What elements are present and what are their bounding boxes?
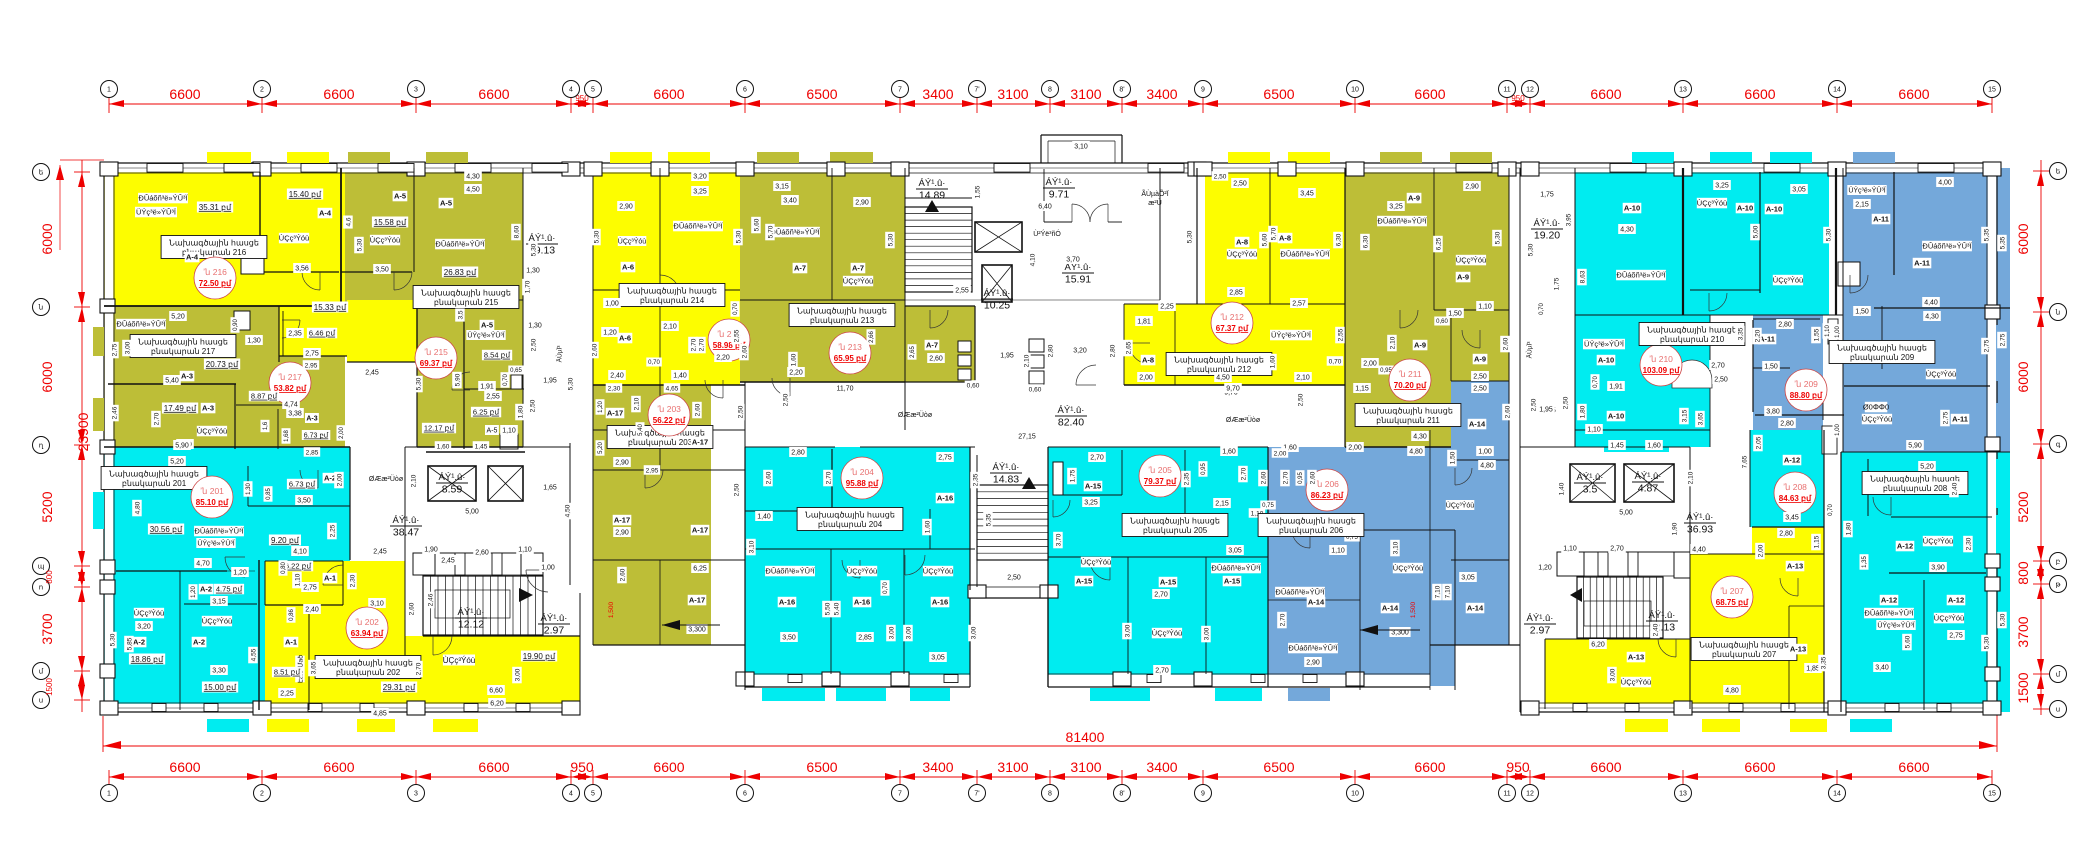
svg-text:2,70: 2,70: [153, 412, 160, 425]
svg-text:11,70: 11,70: [837, 386, 854, 393]
svg-text:բնակարան 204: բնակարան 204: [818, 520, 883, 529]
svg-text:2,95: 2,95: [305, 362, 318, 369]
svg-text:3,00: 3,00: [1609, 668, 1616, 681]
svg-text:ØÆæ²Üòø: ØÆæ²Üòø: [898, 411, 933, 419]
svg-text:5,00: 5,00: [1752, 225, 1759, 238]
svg-text:2,45: 2,45: [373, 549, 387, 556]
svg-text:1,20: 1,20: [1538, 565, 1552, 572]
svg-text:5,60: 5,60: [1261, 233, 1268, 246]
svg-text:2,70: 2,70: [1240, 467, 1247, 480]
svg-text:86.23 բմ: 86.23 բմ: [1311, 491, 1344, 500]
svg-text:2,60: 2,60: [765, 471, 772, 484]
svg-text:2,65: 2,65: [910, 346, 916, 358]
svg-text:2,60: 2,60: [1260, 471, 1267, 484]
svg-text:1,00: 1,00: [605, 301, 619, 308]
svg-text:3,25: 3,25: [1715, 183, 1729, 190]
svg-text:A-16: A-16: [779, 598, 795, 607]
svg-text:2,20: 2,20: [789, 370, 803, 377]
svg-text:6: 6: [743, 87, 747, 94]
svg-text:5,30: 5,30: [1825, 228, 1832, 241]
svg-text:ʼն 203: ʼն 203: [657, 404, 681, 414]
svg-text:4,55: 4,55: [250, 648, 257, 661]
svg-text:2,40: 2,40: [305, 607, 319, 614]
svg-text:Նախագծային հասցե: Նախագծային հասցե: [169, 239, 259, 248]
svg-text:3,5: 3,5: [457, 310, 464, 319]
svg-text:3,00: 3,00: [124, 341, 131, 354]
svg-text:14: 14: [1833, 791, 1841, 798]
svg-text:2,50: 2,50: [1562, 396, 1569, 409]
svg-text:6.22 բմ: 6.22 բմ: [285, 562, 312, 571]
svg-text:1,15: 1,15: [1355, 386, 1369, 393]
svg-text:1,20: 1,20: [191, 586, 197, 598]
svg-text:2,00: 2,00: [1274, 450, 1287, 457]
svg-text:68.75 բմ: 68.75 բմ: [1716, 598, 1749, 607]
svg-text:6500: 6500: [1263, 759, 1294, 775]
svg-text:6600: 6600: [1414, 759, 1445, 775]
svg-text:950: 950: [570, 759, 594, 775]
svg-text:1,00: 1,00: [541, 565, 555, 572]
svg-text:6600: 6600: [169, 86, 200, 102]
svg-text:ÐÛáõñ³ë»ÝÛ³Ï: ÐÛáõñ³ë»ÝÛ³Ï: [1922, 242, 1972, 251]
svg-text:2.97: 2.97: [1530, 625, 1551, 637]
svg-text:A-13: A-13: [1787, 562, 1803, 571]
svg-text:A-2: A-2: [133, 638, 145, 647]
svg-text:2,85: 2,85: [306, 449, 319, 456]
svg-text:A-5: A-5: [487, 428, 498, 435]
svg-text:6500: 6500: [806, 86, 837, 102]
svg-text:A-2: A-2: [193, 638, 205, 647]
svg-text:ÜÝç³ë»ÝÛ³Ï: ÜÝç³ë»ÝÛ³Ï: [1271, 331, 1312, 340]
svg-text:Նախագծային հասցե: Նախագծային հասցե: [1130, 517, 1220, 526]
svg-text:2,70: 2,70: [825, 471, 832, 484]
svg-text:8.51 բմ: 8.51 բմ: [274, 668, 301, 677]
svg-text:5,30: 5,30: [1527, 243, 1534, 256]
svg-text:81400: 81400: [1066, 729, 1105, 745]
svg-text:3,20: 3,20: [1073, 348, 1087, 355]
svg-text:3,40: 3,40: [783, 198, 797, 205]
svg-text:3,50: 3,50: [782, 635, 796, 642]
svg-text:8: 8: [1048, 87, 1052, 94]
svg-text:2,10: 2,10: [633, 397, 640, 410]
svg-text:2,60: 2,60: [741, 345, 748, 358]
svg-text:5,20: 5,20: [171, 314, 185, 321]
svg-text:5,30: 5,30: [356, 238, 363, 251]
svg-text:7: 7: [898, 87, 902, 94]
svg-text:1,80: 1,80: [517, 405, 524, 418]
svg-text:2,60: 2,60: [408, 602, 415, 615]
svg-text:ղ: ղ: [39, 443, 44, 450]
svg-text:14: 14: [1833, 87, 1841, 94]
svg-text:4,30: 4,30: [1413, 434, 1427, 441]
svg-text:Նախագծային հասցե: Նախագծային հասցե: [797, 307, 887, 316]
svg-text:ն: ն: [2055, 309, 2060, 317]
svg-text:1,40: 1,40: [1558, 482, 1565, 495]
svg-text:5,30: 5,30: [887, 233, 894, 246]
svg-text:3,65: 3,65: [1697, 412, 1704, 425]
svg-text:3,300: 3,300: [1391, 630, 1409, 637]
svg-text:Նախագծային հասցե: Նախագծային հասցե: [1363, 407, 1453, 416]
svg-text:12: 12: [1526, 791, 1534, 798]
svg-text:A-3: A-3: [202, 404, 214, 413]
svg-text:20.73 բմ: 20.73 բմ: [206, 360, 239, 369]
svg-text:1,65: 1,65: [543, 485, 557, 492]
svg-text:1,50: 1,50: [1448, 311, 1462, 318]
svg-text:2,50: 2,50: [530, 338, 537, 351]
svg-text:A-10: A-10: [1608, 412, 1624, 421]
svg-text:ÁÝ¹.û·: ÁÝ¹.û·: [1635, 471, 1662, 482]
svg-text:2,80: 2,80: [1779, 531, 1793, 538]
svg-text:A-13: A-13: [1790, 645, 1806, 654]
svg-text:5,50: 5,50: [824, 602, 831, 615]
svg-text:3,10: 3,10: [748, 540, 755, 553]
svg-text:Ù²Ýë³ñÓ: Ù²Ýë³ñÓ: [1033, 229, 1061, 238]
svg-text:2,75: 2,75: [938, 455, 952, 462]
svg-text:A-9: A-9: [1457, 273, 1469, 282]
svg-text:4,50: 4,50: [564, 504, 571, 517]
svg-text:1,00: 1,00: [1835, 424, 1841, 436]
svg-text:6,20: 6,20: [490, 701, 504, 708]
svg-text:ÐÛáõñ³ë»ÝÛ³Ï: ÐÛáõñ³ë»ÝÛ³Ï: [1211, 564, 1261, 573]
svg-text:2,75: 2,75: [303, 585, 317, 592]
svg-text:2,60: 2,60: [619, 568, 626, 581]
svg-text:2,25: 2,25: [329, 524, 336, 537]
svg-text:A-5: A-5: [481, 321, 493, 330]
svg-text:1,95: 1,95: [1000, 353, 1014, 360]
svg-text:1,10: 1,10: [1331, 548, 1345, 555]
svg-text:ÁÝ¹.û·: ÁÝ¹.û·: [541, 613, 568, 624]
svg-text:2,57: 2,57: [1292, 301, 1306, 308]
svg-text:4,10: 4,10: [293, 549, 307, 556]
svg-text:ÁÝ¹.û·: ÁÝ¹.û·: [984, 288, 1011, 299]
svg-text:3: 3: [414, 87, 418, 94]
svg-text:3,56: 3,56: [295, 266, 309, 273]
svg-text:19.20: 19.20: [1534, 230, 1560, 242]
svg-text:ÙÇç³Ýóù: ÙÇç³Ýóù: [847, 567, 877, 576]
svg-text:2,70: 2,70: [415, 662, 422, 675]
svg-text:17.49 բմ: 17.49 բմ: [164, 404, 197, 413]
svg-text:ÐÛáõñ³ë»ÝÛ³Ï: ÐÛáõñ³ë»ÝÛ³Ï: [770, 228, 820, 237]
svg-text:A-5: A-5: [394, 192, 406, 201]
svg-text:բնակարան 202: բնակարան 202: [336, 668, 401, 677]
svg-text:13: 13: [1679, 791, 1687, 798]
svg-text:Նախագծային հասցե: Նախագծային հասցե: [805, 511, 895, 520]
svg-text:2,10: 2,10: [663, 324, 677, 331]
svg-text:3,05: 3,05: [1792, 187, 1806, 194]
svg-text:ÐÛáõñ³ë»ÝÛ³Ï: ÐÛáõñ³ë»ÝÛ³Ï: [765, 567, 815, 576]
svg-text:2,70: 2,70: [1090, 455, 1104, 462]
svg-text:88.80 բմ: 88.80 բմ: [1790, 391, 1823, 400]
svg-text:2,90: 2,90: [855, 200, 869, 207]
svg-text:2,70: 2,70: [1282, 471, 1289, 484]
svg-text:1,10: 1,10: [518, 547, 532, 554]
svg-text:A-9: A-9: [1408, 194, 1420, 203]
svg-text:2,46: 2,46: [111, 406, 118, 419]
svg-text:2,10: 2,10: [1296, 375, 1310, 382]
svg-text:4,50: 4,50: [466, 187, 480, 194]
svg-text:2,00: 2,00: [339, 427, 345, 439]
svg-text:8': 8': [1119, 791, 1124, 798]
svg-text:8.59: 8.59: [442, 484, 463, 496]
svg-text:2,75: 2,75: [1949, 633, 1963, 640]
svg-text:A-5: A-5: [440, 199, 452, 208]
svg-text:3400: 3400: [922, 759, 953, 775]
svg-text:3,300: 3,300: [688, 627, 706, 634]
svg-text:1,55: 1,55: [1813, 328, 1820, 341]
svg-text:ս: ս: [2056, 707, 2060, 714]
svg-text:5,30: 5,30: [1999, 613, 2006, 626]
svg-text:ո: ո: [39, 585, 43, 592]
svg-text:5,35: 5,35: [985, 513, 992, 526]
svg-text:2,10: 2,10: [1023, 354, 1030, 367]
svg-text:3,10: 3,10: [370, 601, 384, 608]
svg-text:0,60: 0,60: [1436, 319, 1448, 325]
svg-text:3,70: 3,70: [1055, 533, 1062, 546]
svg-text:ÜÝç³ë»ÝÛ³Ï: ÜÝç³ë»ÝÛ³Ï: [1877, 621, 1914, 630]
svg-text:5: 5: [591, 791, 595, 798]
svg-text:4: 4: [569, 87, 573, 94]
svg-text:ÃÙµÏ³: ÃÙµÏ³: [554, 345, 563, 363]
svg-text:3100: 3100: [1070, 86, 1101, 102]
svg-text:2,60: 2,60: [591, 343, 598, 356]
svg-text:4.87: 4.87: [1638, 483, 1659, 495]
svg-text:26.83 բմ: 26.83 բմ: [444, 268, 477, 277]
svg-text:ÁÝ¹.û·: ÁÝ¹.û·: [993, 462, 1020, 473]
svg-text:1,60: 1,60: [790, 353, 797, 366]
svg-text:5,40: 5,40: [638, 424, 644, 436]
svg-text:14.83: 14.83: [993, 474, 1019, 486]
svg-text:1500: 1500: [2015, 672, 2031, 703]
svg-text:3100: 3100: [997, 86, 1028, 102]
svg-text:4,00: 4,00: [1938, 180, 1952, 187]
svg-text:11: 11: [1503, 87, 1510, 94]
svg-text:A-15: A-15: [1085, 482, 1101, 491]
svg-text:6,60: 6,60: [489, 688, 503, 695]
svg-text:3,20: 3,20: [693, 174, 707, 181]
svg-text:A-12: A-12: [1897, 542, 1913, 551]
svg-text:2,15: 2,15: [1215, 501, 1229, 508]
svg-text:ÜÝç³ë»ÝÛ³Ï: ÜÝç³ë»ÝÛ³Ï: [467, 331, 504, 340]
svg-text:4,74: 4,74: [284, 402, 298, 409]
svg-text:5,70: 5,70: [1270, 227, 1277, 240]
svg-text:ÙÇç³Ýóù: ÙÇç³Ýóù: [1227, 250, 1257, 259]
svg-text:3,65: 3,65: [310, 661, 317, 674]
svg-text:1,00: 1,00: [1835, 326, 1841, 338]
svg-text:ÙÇç³Ýóù: ÙÇç³Ýóù: [197, 427, 227, 436]
svg-text:4,80: 4,80: [1409, 449, 1423, 456]
svg-text:12.12: 12.12: [458, 619, 484, 631]
svg-text:3,15: 3,15: [775, 184, 789, 191]
svg-text:մ: մ: [2056, 671, 2061, 679]
svg-text:ÙÇç³Ýóù: ÙÇç³Ýóù: [1456, 256, 1486, 265]
svg-text:1,90: 1,90: [424, 547, 438, 554]
svg-text:15.00 բմ: 15.00 բմ: [204, 683, 237, 692]
svg-text:A-11: A-11: [1914, 259, 1930, 268]
svg-text:2,20: 2,20: [1754, 329, 1761, 342]
svg-text:æ²Ù: æ²Ù: [1148, 198, 1162, 207]
svg-text:Նախագծային հասցե: Նախագծային հասցե: [109, 470, 199, 479]
svg-text:2,70: 2,70: [1610, 546, 1624, 553]
svg-text:1,30: 1,30: [526, 268, 540, 275]
svg-text:950: 950: [1511, 94, 1525, 103]
svg-text:6600: 6600: [478, 759, 509, 775]
svg-text:1,90: 1,90: [1671, 522, 1678, 535]
svg-text:2,70: 2,70: [1154, 592, 1168, 599]
svg-text:1,50: 1,50: [1449, 451, 1456, 464]
svg-text:1,95: 1,95: [1539, 407, 1553, 414]
svg-text:36.93: 36.93: [1687, 524, 1713, 536]
svg-text:63.94 բմ: 63.94 բմ: [351, 629, 384, 638]
svg-text:2,50: 2,50: [1297, 393, 1304, 406]
svg-text:79.37 բմ: 79.37 բմ: [1144, 477, 1177, 486]
svg-text:84.63 բմ: 84.63 բմ: [1779, 494, 1812, 503]
svg-text:2,70: 2,70: [1155, 668, 1169, 675]
svg-text:3,50: 3,50: [375, 267, 389, 274]
svg-text:ÙÇç³Ýóù: ÙÇç³Ýóù: [134, 609, 164, 618]
svg-text:7': 7': [974, 791, 979, 798]
svg-text:1,20: 1,20: [233, 570, 247, 577]
svg-text:5,35: 5,35: [1999, 236, 2006, 249]
svg-text:4,70: 4,70: [196, 561, 210, 568]
svg-text:6600: 6600: [1590, 759, 1621, 775]
svg-text:A-7: A-7: [852, 264, 864, 273]
svg-text:A-7: A-7: [926, 341, 938, 350]
svg-text:2,60: 2,60: [1504, 405, 1511, 418]
svg-text:0,60: 0,60: [1029, 386, 1042, 393]
svg-text:3,90: 3,90: [1931, 565, 1945, 572]
svg-text:13: 13: [1679, 87, 1687, 94]
svg-text:0,70: 0,70: [503, 374, 509, 386]
svg-text:5,30: 5,30: [109, 633, 116, 646]
svg-text:A-9: A-9: [1474, 355, 1486, 364]
svg-text:3400: 3400: [922, 86, 953, 102]
svg-text:2,60: 2,60: [694, 403, 701, 416]
svg-text:ʼն 213: ʼն 213: [838, 342, 862, 352]
svg-text:1,10: 1,10: [1825, 325, 1831, 337]
svg-text:ʼն 215: ʼն 215: [424, 347, 448, 357]
svg-text:72.50 բմ: 72.50 բմ: [199, 279, 232, 288]
svg-text:2,15: 2,15: [1855, 202, 1869, 209]
svg-text:9: 9: [1201, 87, 1205, 94]
svg-text:9.20 բմ: 9.20 բմ: [271, 536, 300, 545]
svg-text:1,10: 1,10: [1478, 304, 1492, 311]
svg-text:ÐÛáõñ³ë»ÝÛ³Ï: ÐÛáõñ³ë»ÝÛ³Ï: [1275, 588, 1325, 597]
svg-text:A-3: A-3: [306, 416, 317, 423]
svg-text:5,90: 5,90: [175, 443, 189, 450]
svg-text:8,60: 8,60: [513, 225, 520, 238]
svg-text:6.46 բմ: 6.46 բմ: [309, 329, 336, 338]
svg-text:2,00: 2,00: [1348, 445, 1362, 452]
svg-text:բնակարան 203: բնակարան 203: [628, 438, 693, 447]
svg-text:բնակարան 214: բնակարան 214: [640, 296, 705, 305]
svg-text:ʼն 217: ʼն 217: [278, 372, 302, 382]
svg-text:6600: 6600: [1744, 86, 1775, 102]
svg-text:2,70: 2,70: [698, 338, 705, 351]
svg-text:2,80: 2,80: [1778, 322, 1792, 329]
svg-text:ÙÇç³Ýóù: ÙÇç³Ýóù: [1393, 564, 1423, 573]
svg-text:3100: 3100: [997, 759, 1028, 775]
svg-text:2,00: 2,00: [336, 473, 343, 486]
svg-text:ÁÝ¹.û·: ÁÝ¹.û·: [1527, 613, 1554, 624]
svg-text:4,65: 4,65: [666, 385, 679, 392]
svg-text:4,30: 4,30: [466, 174, 480, 181]
svg-text:3,35: 3,35: [1737, 327, 1744, 340]
svg-text:2,50: 2,50: [1714, 377, 1728, 384]
svg-text:1,81: 1,81: [1137, 319, 1151, 326]
svg-text:2.97: 2.97: [544, 625, 565, 637]
svg-text:1,95: 1,95: [543, 378, 557, 385]
svg-text:A-15: A-15: [1160, 578, 1176, 587]
svg-text:1,45: 1,45: [1610, 443, 1624, 450]
svg-text:4,80: 4,80: [1725, 688, 1739, 695]
svg-text:15: 15: [1988, 791, 1996, 798]
svg-text:ÁÝ¹.û·: ÁÝ¹.û·: [1649, 610, 1676, 621]
svg-text:A-13: A-13: [1628, 653, 1644, 662]
svg-text:11: 11: [1503, 791, 1510, 798]
svg-text:ÐÛáõñ³ë»ÝÛ³Ï: ÐÛáõñ³ë»ÝÛ³Ï: [116, 320, 166, 329]
svg-text:ʼն 206: ʼն 206: [1315, 479, 1339, 489]
svg-text:2,50: 2,50: [1233, 181, 1247, 188]
svg-text:65.95 բմ: 65.95 բմ: [834, 354, 867, 363]
svg-text:8,63: 8,63: [1579, 270, 1586, 283]
svg-text:ÙÇç³Ýóù: ÙÇç³Ýóù: [1926, 370, 1956, 379]
svg-text:2,50: 2,50: [1214, 173, 1227, 180]
svg-text:4,40: 4,40: [1692, 547, 1706, 554]
svg-text:5,30: 5,30: [1983, 636, 1990, 649]
svg-text:A-14: A-14: [1308, 598, 1325, 607]
svg-text:4,50: 4,50: [1216, 375, 1230, 382]
svg-text:2,10: 2,10: [1687, 471, 1694, 484]
svg-text:56.22 բմ: 56.22 բմ: [653, 416, 686, 425]
svg-text:2,80: 2,80: [1047, 344, 1054, 357]
svg-text:2,60: 2,60: [475, 550, 489, 557]
svg-text:38.47: 38.47: [393, 527, 419, 539]
svg-text:ʼն 207: ʼն 207: [1720, 586, 1744, 596]
svg-text:2,70: 2,70: [1279, 613, 1286, 626]
svg-text:ÙÇç³Ýóù: ÙÇç³Ýóù: [1923, 537, 1953, 546]
svg-text:ս: ս: [39, 698, 43, 705]
svg-text:3,25: 3,25: [1389, 204, 1403, 211]
svg-text:6000: 6000: [2015, 223, 2031, 254]
svg-text:ÙÇç³Ýóù: ÙÇç³Ýóù: [1081, 558, 1111, 567]
svg-text:Նախագծային հասցե: Նախագծային հասցե: [1174, 356, 1264, 365]
svg-text:6.25 բմ: 6.25 բմ: [473, 408, 500, 417]
svg-text:ÐÛáõñ³ë»ÝÛ³Ï: ÐÛáõñ³ë»ÝÛ³Ï: [1288, 644, 1338, 653]
svg-text:15.58 բմ: 15.58 բմ: [374, 218, 407, 227]
svg-text:82.40: 82.40: [1058, 417, 1084, 429]
svg-text:6600: 6600: [1744, 759, 1775, 775]
svg-text:2,35: 2,35: [1183, 472, 1190, 485]
svg-text:ÜÝç³ë»ÝÛ³Ï: ÜÝç³ë»ÝÛ³Ï: [1848, 186, 1885, 195]
svg-text:1,70: 1,70: [524, 280, 531, 293]
svg-text:1,10: 1,10: [502, 428, 516, 435]
svg-text:Նախագծային հասցե: Նախագծային հասցե: [627, 287, 717, 296]
svg-text:7': 7': [974, 87, 979, 94]
svg-text:1,91: 1,91: [1609, 384, 1623, 391]
svg-text:A-7: A-7: [794, 264, 806, 273]
svg-text:ÐÛáõñ³ë»ÝÛ³Ï: ÐÛáõñ³ë»ÝÛ³Ï: [673, 222, 723, 231]
svg-text:2: 2: [260, 87, 264, 94]
svg-text:A-2: A-2: [200, 585, 212, 594]
svg-text:ÙÇç³Ýóù: ÙÇç³Ýóù: [202, 617, 232, 626]
svg-text:ÙÇç³Ýóù: ÙÇç³Ýóù: [843, 277, 873, 286]
svg-text:բնակարան 215: բնակարան 215: [434, 298, 499, 307]
svg-text:2,90: 2,90: [1465, 184, 1479, 191]
svg-text:բնակարան 201: բնակարան 201: [122, 479, 187, 488]
svg-text:6600: 6600: [653, 86, 684, 102]
svg-text:2,50: 2,50: [733, 483, 740, 496]
svg-text:A-8: A-8: [1142, 356, 1154, 365]
svg-text:A-12: A-12: [1948, 596, 1964, 605]
